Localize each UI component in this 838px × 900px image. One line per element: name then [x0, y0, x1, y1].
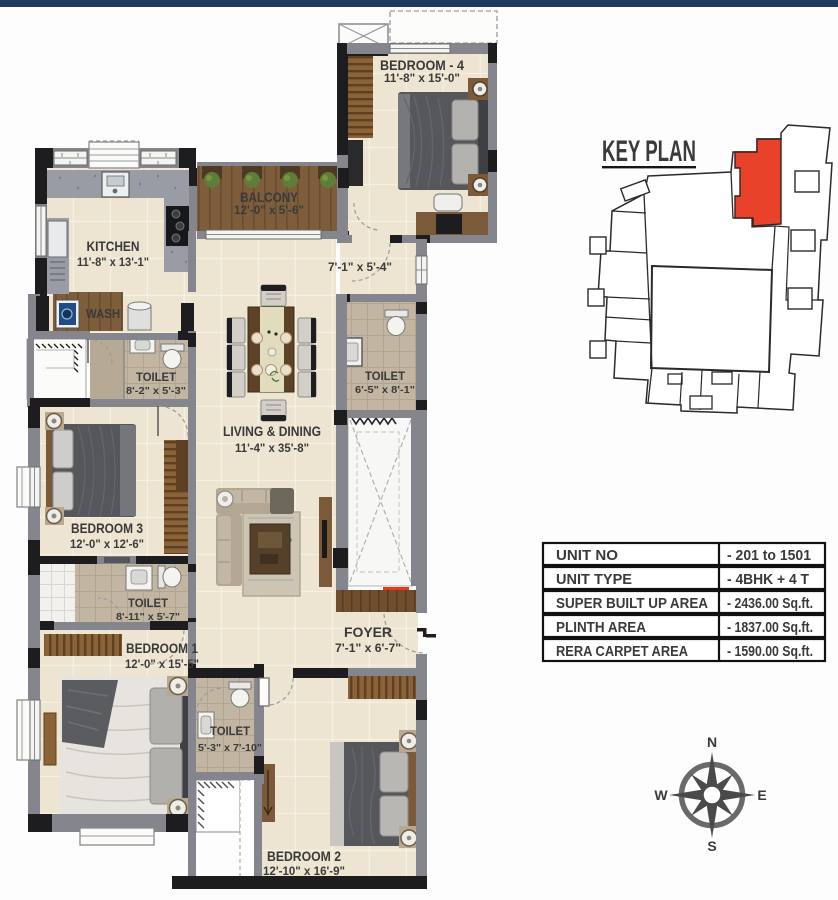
svg-text:8'-11" x 5'-7": 8'-11" x 5'-7" [116, 611, 180, 623]
svg-text:W: W [654, 787, 668, 803]
svg-text:TOILET: TOILET [210, 726, 250, 738]
svg-text:BEDROOM 2: BEDROOM 2 [267, 848, 341, 864]
svg-text:- 201 to 1501: - 201 to 1501 [727, 547, 811, 564]
svg-text:12'-0" x 15'-5": 12'-0" x 15'-5" [125, 657, 199, 671]
svg-text:RERA CARPET AREA: RERA CARPET AREA [556, 643, 688, 660]
svg-text:6'-5" x 8'-1": 6'-5" x 8'-1" [355, 384, 415, 396]
svg-text:- 2436.00 Sq.ft.: - 2436.00 Sq.ft. [727, 595, 813, 612]
svg-text:TOILET: TOILET [136, 372, 176, 384]
svg-text:WASH: WASH [86, 307, 120, 321]
svg-text:UNIT TYPE: UNIT TYPE [556, 571, 632, 588]
svg-text:N: N [707, 734, 717, 750]
svg-text:TOILET: TOILET [128, 598, 168, 610]
svg-text:- 4BHK + 4 T: - 4BHK + 4 T [727, 571, 809, 588]
svg-text:7'-1" x 6'-7": 7'-1" x 6'-7" [335, 641, 401, 655]
svg-text:KITCHEN: KITCHEN [87, 238, 140, 254]
svg-text:12'-10" x 16'-9": 12'-10" x 16'-9" [263, 864, 345, 878]
svg-text:8'-2" x 5'-3": 8'-2" x 5'-3" [126, 385, 186, 397]
svg-text:TOILET: TOILET [365, 371, 405, 383]
svg-text:5'-3" x 7'-10": 5'-3" x 7'-10" [198, 742, 262, 754]
svg-text:SUPER BUILT UP AREA: SUPER BUILT UP AREA [556, 595, 708, 612]
svg-text:PLINTH AREA: PLINTH AREA [556, 619, 646, 636]
svg-text:12'-0" x 12'-6": 12'-0" x 12'-6" [70, 537, 144, 551]
svg-text:KEY PLAN: KEY PLAN [602, 135, 696, 168]
svg-text:7'-1" x 5'-4": 7'-1" x 5'-4" [328, 262, 392, 274]
svg-text:E: E [757, 787, 766, 803]
svg-text:- 1837.00 Sq.ft.: - 1837.00 Sq.ft. [727, 619, 813, 636]
svg-text:LIVING & DINING: LIVING & DINING [223, 423, 321, 439]
svg-text:12'-0" x 5'-6": 12'-0" x 5'-6" [234, 203, 304, 217]
svg-text:11'-4" x 35'-8": 11'-4" x 35'-8" [235, 441, 309, 455]
svg-text:BEDROOM 3: BEDROOM 3 [71, 520, 143, 536]
svg-text:11'-8" x 13'-1": 11'-8" x 13'-1" [77, 255, 149, 269]
svg-text:11'-8" x 15'-0": 11'-8" x 15'-0" [384, 71, 460, 85]
svg-text:UNIT NO: UNIT NO [556, 547, 618, 564]
svg-text:S: S [707, 838, 716, 854]
svg-text:- 1590.00 Sq.ft.: - 1590.00 Sq.ft. [727, 643, 813, 660]
svg-text:BEDROOM 1: BEDROOM 1 [126, 640, 198, 656]
svg-text:FOYER: FOYER [344, 624, 392, 640]
